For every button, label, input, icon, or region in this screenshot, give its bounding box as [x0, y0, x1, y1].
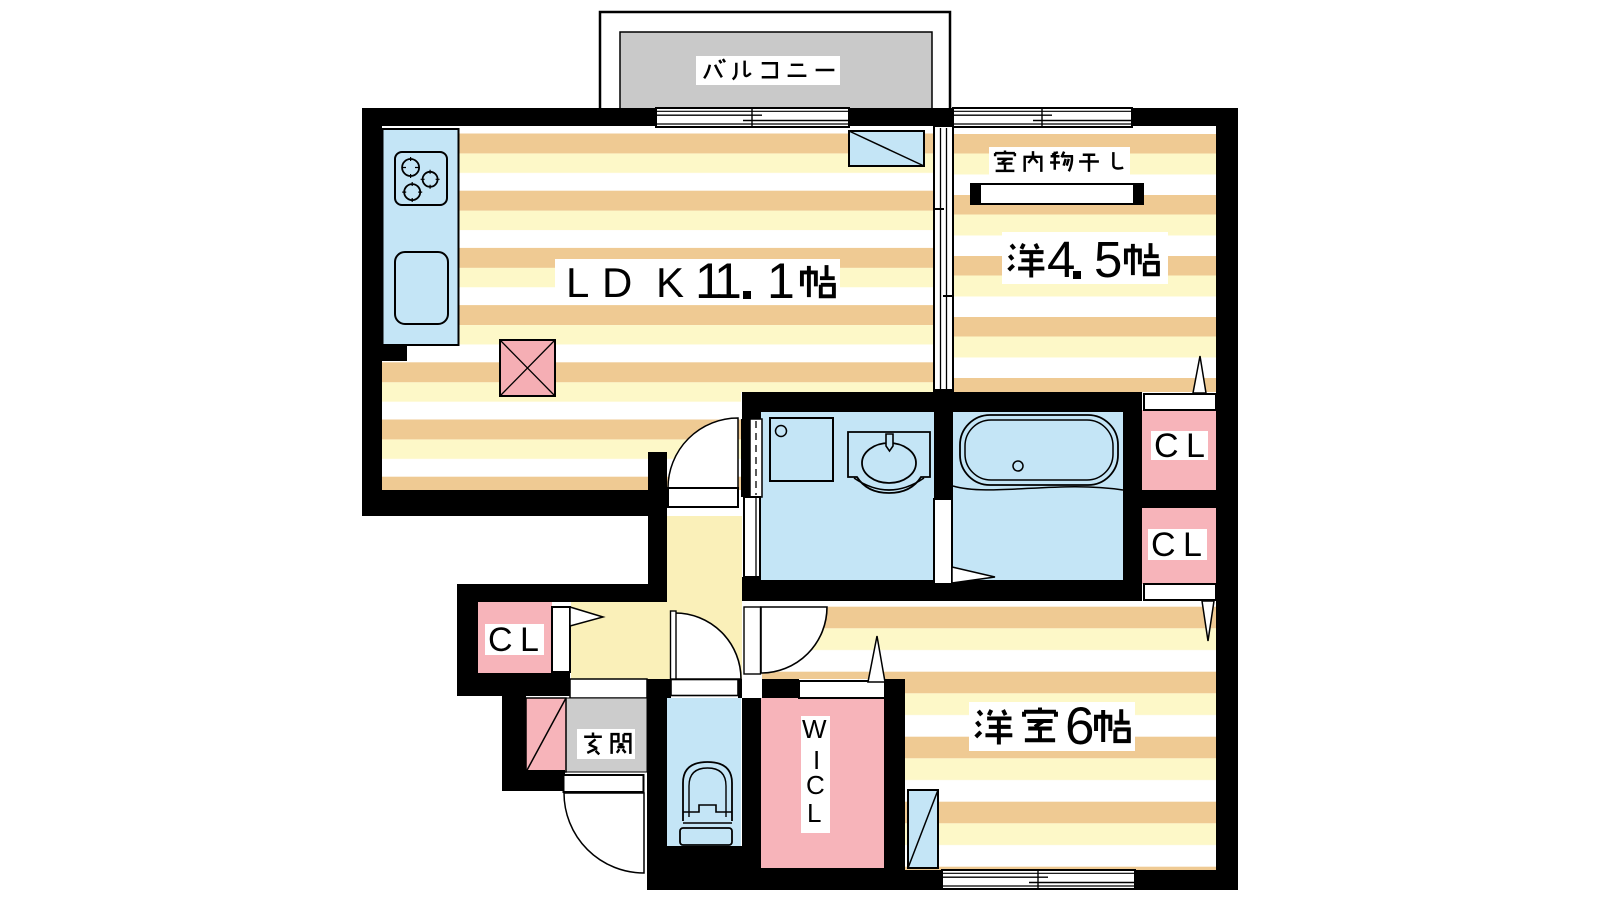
- svg-text:4: 4: [1047, 231, 1075, 288]
- svg-text:1: 1: [714, 253, 742, 309]
- svg-text:C: C: [1154, 427, 1179, 465]
- svg-text:L: L: [1186, 427, 1205, 465]
- svg-text:K: K: [656, 259, 684, 306]
- svg-text:L: L: [520, 621, 539, 659]
- svg-text:C: C: [806, 770, 825, 800]
- svg-text:D: D: [602, 259, 632, 306]
- svg-text:C: C: [488, 621, 513, 659]
- svg-text:1: 1: [767, 253, 795, 309]
- svg-text:C: C: [1151, 526, 1176, 564]
- svg-text:6: 6: [1065, 697, 1094, 756]
- svg-text:W: W: [802, 714, 827, 744]
- svg-text:L: L: [1183, 526, 1202, 564]
- svg-text:L: L: [566, 259, 589, 306]
- svg-text:L: L: [807, 798, 821, 828]
- svg-text:5: 5: [1094, 231, 1122, 288]
